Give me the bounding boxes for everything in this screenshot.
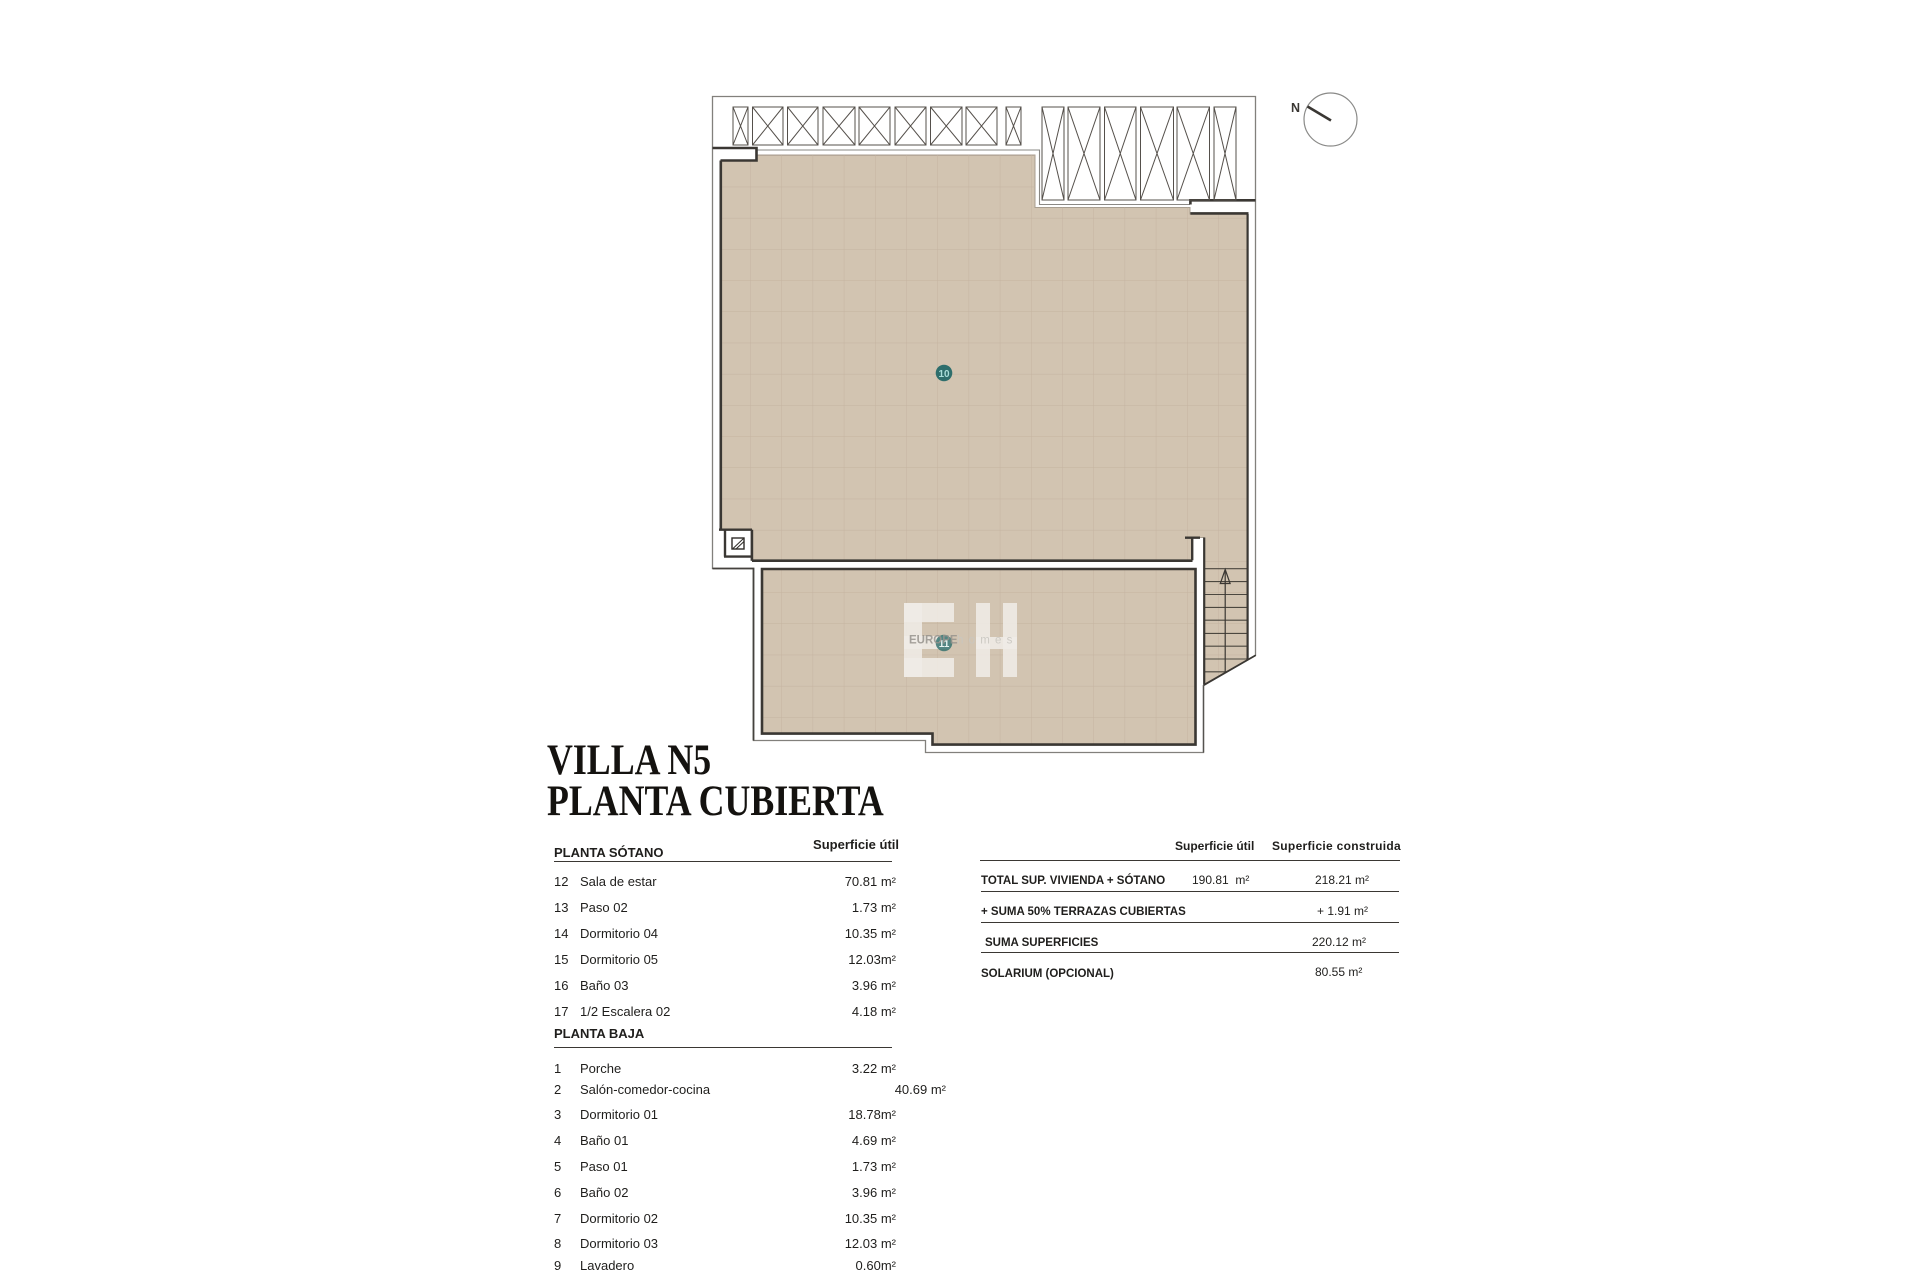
svg-text:homes: homes [957,635,1018,647]
svg-text:EUROPE: EUROPE [909,635,958,647]
svg-text:10: 10 [938,369,950,380]
svg-text:N: N [1291,101,1300,115]
